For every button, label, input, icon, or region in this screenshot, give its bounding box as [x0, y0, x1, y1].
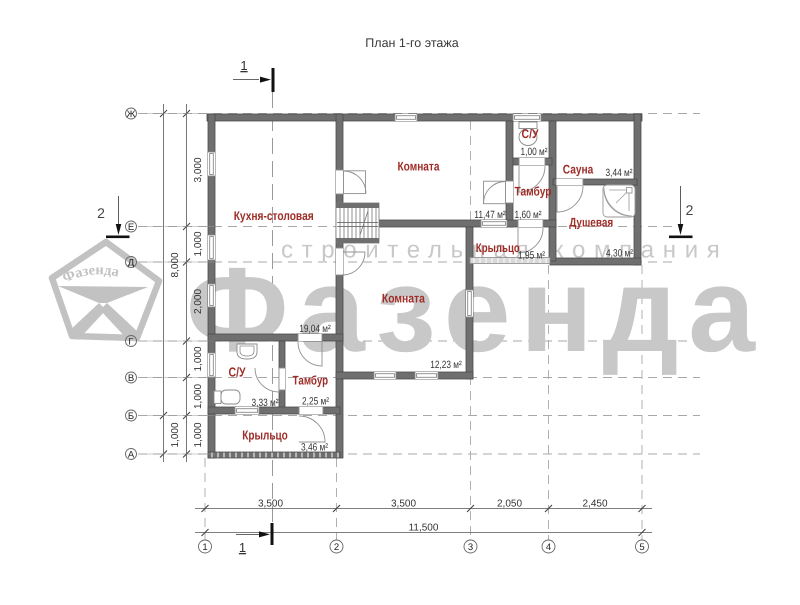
svg-text:Крыльцо: Крыльцо: [476, 241, 520, 255]
svg-text:Г: Г: [128, 336, 133, 347]
svg-text:1,000: 1,000: [170, 422, 181, 447]
svg-text:2,450: 2,450: [582, 499, 607, 510]
svg-text:3: 3: [468, 542, 473, 553]
svg-text:Б: Б: [128, 411, 134, 422]
svg-text:2,000: 2,000: [193, 289, 204, 314]
svg-text:3,500: 3,500: [258, 499, 283, 510]
svg-text:Е: Е: [128, 222, 134, 233]
svg-text:2: 2: [686, 202, 694, 218]
svg-text:Кухня-столовая: Кухня-столовая: [234, 209, 314, 223]
svg-text:2: 2: [97, 205, 105, 221]
svg-text:1,000: 1,000: [193, 346, 204, 371]
svg-text:1,95 м²: 1,95 м²: [518, 250, 545, 262]
svg-text:Сауна: Сауна: [563, 163, 594, 177]
svg-text:1,60 м²: 1,60 м²: [515, 209, 542, 221]
svg-text:1,000: 1,000: [193, 384, 204, 409]
svg-text:1,00 м²: 1,00 м²: [521, 146, 548, 158]
svg-text:2: 2: [334, 542, 339, 553]
svg-text:1: 1: [240, 58, 247, 73]
svg-text:Тамбур: Тамбур: [293, 374, 329, 388]
svg-text:А: А: [128, 449, 135, 460]
svg-text:1: 1: [202, 542, 207, 553]
svg-text:В: В: [128, 373, 134, 384]
svg-text:1: 1: [239, 540, 246, 555]
svg-text:1,000: 1,000: [193, 231, 204, 256]
svg-text:3,44 м²: 3,44 м²: [606, 167, 633, 179]
svg-text:Комната: Комната: [382, 292, 426, 306]
svg-text:Крыльцо: Крыльцо: [242, 428, 288, 443]
svg-text:11,500: 11,500: [409, 523, 439, 534]
svg-text:План 1-го этажа: План 1-го этажа: [365, 36, 458, 50]
svg-text:1,000: 1,000: [193, 422, 204, 447]
svg-text:2,050: 2,050: [497, 499, 522, 510]
svg-text:11,47 м²: 11,47 м²: [474, 209, 506, 221]
svg-text:Д: Д: [128, 257, 135, 268]
svg-text:5: 5: [639, 542, 644, 553]
svg-text:2,25 м²: 2,25 м²: [302, 396, 329, 408]
svg-text:Комната: Комната: [398, 160, 441, 174]
svg-text:С/У: С/У: [522, 127, 539, 141]
svg-text:Ж: Ж: [127, 109, 136, 120]
svg-text:4,30 м²: 4,30 м²: [606, 248, 633, 260]
svg-text:4: 4: [546, 542, 551, 553]
svg-text:8,000: 8,000: [170, 252, 181, 277]
svg-text:19,04 м²: 19,04 м²: [299, 323, 331, 335]
svg-text:С/У: С/У: [229, 365, 247, 380]
svg-text:3,000: 3,000: [193, 157, 204, 182]
svg-text:12,23 м²: 12,23 м²: [430, 359, 462, 371]
svg-text:3,46 м²: 3,46 м²: [301, 442, 328, 454]
svg-text:3,500: 3,500: [391, 499, 416, 510]
svg-text:3,33 м²: 3,33 м²: [252, 397, 279, 409]
svg-text:Душевая: Душевая: [569, 216, 613, 230]
svg-text:Тамбур: Тамбур: [515, 185, 552, 199]
